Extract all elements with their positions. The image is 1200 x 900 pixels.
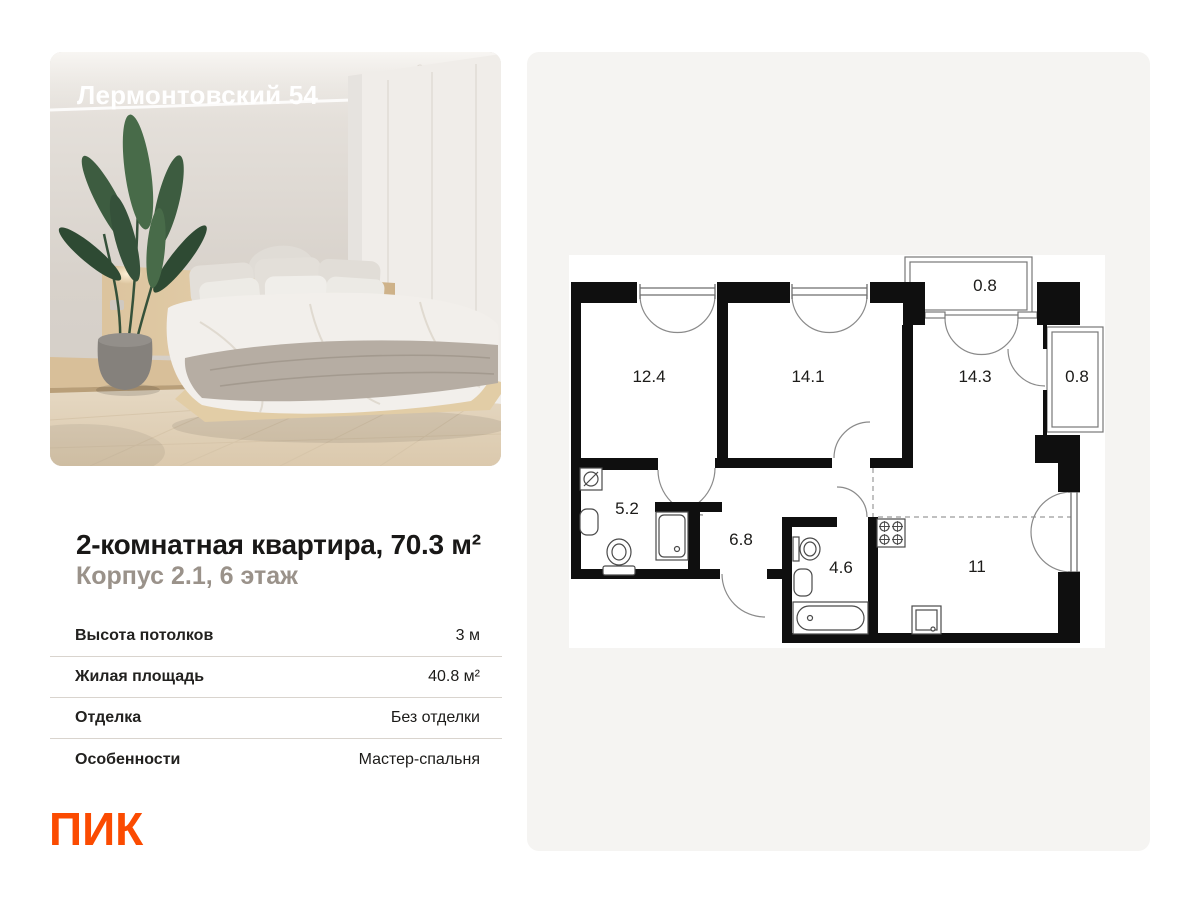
listing-title: 2-комнатная квартира, 70.3 м² — [76, 530, 516, 560]
room-label-bathroom-1: 5.2 — [615, 499, 639, 518]
sink-icon — [580, 509, 598, 535]
floor-plan: 12.4 14.1 14.3 0.8 0.8 5.2 6.8 4.6 11 — [560, 250, 1110, 650]
bedroom-photo — [50, 52, 501, 466]
room-label-hallway: 6.8 — [729, 530, 753, 549]
spec-label: Отделка — [75, 709, 141, 727]
spec-value: Мастер-спальня — [359, 751, 480, 769]
toilet-icon — [793, 537, 820, 561]
sink-icon — [794, 569, 812, 596]
spec-row-ceiling-height: Высота потолков 3 м — [50, 616, 502, 657]
stove-icon — [877, 519, 905, 547]
spec-label: Высота потолков — [75, 627, 213, 645]
kitchen-sink-icon — [912, 606, 941, 634]
pik-logo: ПИК — [49, 806, 143, 852]
shower-icon — [656, 512, 688, 560]
spec-value: Без отделки — [391, 709, 480, 727]
spec-row-features: Особенности Мастер-спальня — [50, 739, 502, 780]
room-label-kitchen: 11 — [968, 557, 986, 576]
room-label-bedroom-1: 12.4 — [632, 367, 665, 386]
specs-table: Высота потолков 3 м Жилая площадь 40.8 м… — [50, 616, 502, 780]
room-label-bathroom-2: 4.6 — [829, 558, 853, 577]
spec-value: 3 м — [456, 627, 480, 645]
spec-row-living-area: Жилая площадь 40.8 м² — [50, 657, 502, 698]
spec-value: 40.8 м² — [428, 668, 480, 686]
room-label-bedroom-2: 14.1 — [791, 367, 824, 386]
washing-machine-icon — [580, 468, 602, 490]
room-label-balcony-right: 0.8 — [1065, 367, 1089, 386]
spec-row-finishing: Отделка Без отделки — [50, 698, 502, 739]
spec-label: Жилая площадь — [75, 668, 204, 686]
listing-page: Лермонтовский 54 2-комнатная квартира, 7… — [0, 0, 1200, 900]
room-label-balcony-top: 0.8 — [973, 276, 997, 295]
listing-subtitle: Корпус 2.1, 6 этаж — [76, 562, 516, 590]
project-title: Лермонтовский 54 — [77, 80, 318, 111]
bathtub-icon — [793, 602, 868, 634]
photo-card[interactable]: Лермонтовский 54 — [50, 52, 501, 466]
room-label-living-room: 14.3 — [958, 367, 991, 386]
spec-label: Особенности — [75, 751, 180, 769]
